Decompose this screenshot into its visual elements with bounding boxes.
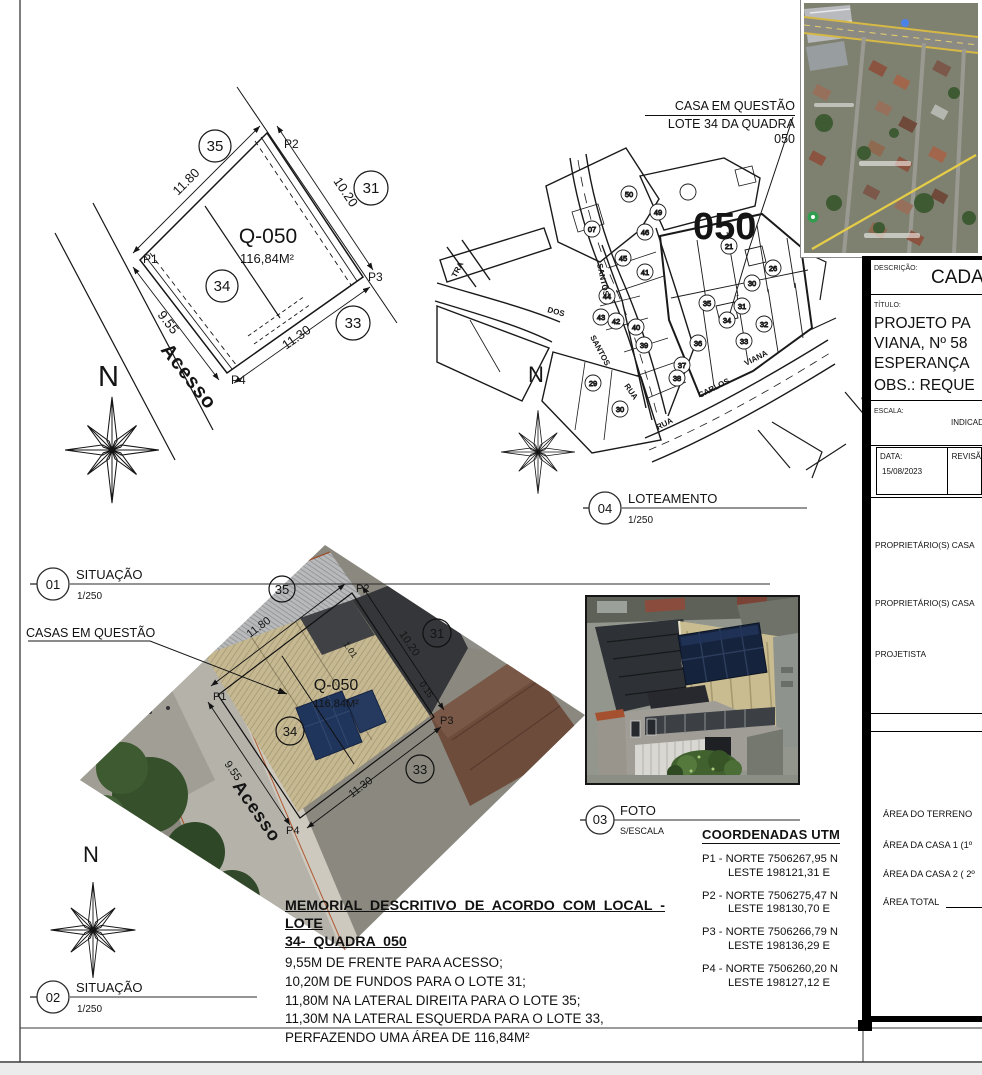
balloon-02-num: 02 (46, 990, 60, 1005)
paper-edge (0, 1063, 982, 1075)
balloon-04-num: 04 (598, 501, 612, 516)
balloon-03-title: FOTO (620, 803, 656, 818)
proprietario1-label: PROPRIETÁRIO(S) CASA (875, 540, 975, 550)
memorial-descritivo: MEMORIAL DESCRITIVO DE ACORDO COM LOCAL … (285, 897, 695, 1048)
casa-callout-line1: CASA EM QUESTÃO (645, 99, 795, 116)
coord-p1-leste: LESTE 198121,31 E (702, 867, 858, 881)
escala-value: INDICADA (951, 418, 982, 427)
balloon-02: 02 SITUAÇÃO 1/250 (30, 980, 257, 1015)
descricao-value: CADA (931, 267, 982, 289)
aer-p2: P2 (356, 583, 369, 595)
casas-em-questao-callout: CASAS EM QUESTÃO (26, 626, 155, 640)
titulo-line4: OBS.: REQUE (874, 377, 975, 395)
dim-9-55: 9.55 (155, 308, 182, 337)
memorial-line: 9,55M DE FRENTE PARA ACESSO; (285, 954, 695, 973)
street-dos: DOS (546, 305, 566, 318)
balloon-01-num: 01 (46, 577, 60, 592)
titulo-line2: VIANA, Nº 58 (874, 335, 968, 353)
aer-p1: P1 (213, 691, 226, 703)
point-p1: P1 (143, 252, 158, 266)
proprietario2-label: PROPRIETÁRIO(S) CASA (875, 598, 975, 608)
memorial-line: 10,20M DE FUNDOS PARA O LOTE 31; (285, 973, 695, 992)
coord-p3-norte: NORTE 7506266,79 N (726, 926, 838, 938)
coord-p2-norte: NORTE 7506275,47 N (726, 890, 838, 902)
street-carlos: CARLOS (697, 376, 732, 400)
map-lot: 41 (641, 268, 649, 277)
map-lot: 42 (612, 317, 620, 326)
satellite-photo (800, 0, 982, 258)
map-lot: 46 (641, 228, 649, 237)
house-photo-image (587, 597, 798, 783)
point-p2: P2 (284, 137, 299, 151)
titleblock-areas: ÁREA DO TERRENO ÁREA DA CASA 1 (1º ÁREA … (871, 732, 982, 1018)
map-lot: 29 (589, 379, 597, 388)
memorial-line: 11,30M NA LATERAL ESQUERDA PARA O LOTE 3… (285, 1010, 695, 1029)
dim-11-30: 11.30 (279, 322, 313, 352)
street-rua-a: RUA (622, 382, 639, 402)
map-lot: 40 (632, 323, 640, 332)
aer-p4: P4 (286, 825, 299, 837)
map-lot: 33 (740, 337, 748, 346)
area-casa1-label: ÁREA DA CASA 1 (1º (883, 840, 972, 850)
titleblock-escala: ESCALA: INDICADA (871, 401, 982, 446)
data-label: DATA: (880, 452, 947, 461)
coord-p1-id: P1 - (702, 853, 723, 865)
map-lot: 07 (588, 225, 596, 234)
coord-p3: P3 - NORTE 7506266,79 N LESTE 198136,29 … (702, 926, 858, 954)
lot-area: 116,84M² (240, 251, 295, 266)
area-casa2-label: ÁREA DA CASA 2 ( 2º (883, 869, 975, 879)
dim-11-80: 11.80 (170, 165, 203, 198)
coord-p2-id: P2 - (702, 890, 723, 902)
balloon-02-scale: 1/250 (77, 1004, 102, 1015)
area-total-label: ÁREA TOTAL (883, 897, 939, 907)
casa-callout-line2: LOTE 34 DA QUADRA 050 (645, 117, 795, 147)
data-value: 15/08/2023 (880, 467, 947, 476)
lot34-label: 34 (214, 278, 231, 295)
aer-p3: P3 (440, 715, 453, 727)
descricao-label: DESCRIÇÃO: (874, 265, 918, 272)
house-photo (585, 595, 800, 785)
map-lot: 37 (678, 361, 686, 370)
quadra-050-label: 050 (693, 206, 756, 248)
projetista-label: PROJETISTA (875, 649, 926, 659)
street-acesso: Acesso (156, 340, 221, 414)
map-lot: 35 (703, 299, 711, 308)
memorial-title-line2: 34- QUADRA 050 (285, 933, 695, 951)
coord-p4-id: P4 - (702, 963, 723, 975)
coord-p3-id: P3 - (702, 926, 723, 938)
data-cell: DATA: 15/08/2023 (877, 448, 948, 494)
balloon-04: 04 LOTEAMENTO 1/250 (583, 491, 807, 526)
titulo-line1: PROJETO PA (874, 315, 971, 333)
coordenadas-utm: COORDENADAS UTM P1 - NORTE 7506267,95 N … (702, 826, 858, 990)
lot33-label: 33 (345, 315, 362, 332)
titleblock-gap-row (871, 714, 982, 732)
area-terreno-label: ÁREA DO TERRENO (883, 809, 972, 819)
memorial-line: 11,80M NA LATERAL DIREITA PARA O LOTE 35… (285, 992, 695, 1011)
balloon-04-scale: 1/250 (628, 515, 653, 526)
map-lot: 45 (619, 254, 627, 263)
map-lot: 43 (597, 313, 605, 322)
balloon-02-title: SITUAÇÃO (76, 980, 142, 995)
memorial-line: PERFAZENDO UMA ÁREA DE 116,84M² (285, 1029, 695, 1048)
titleblock-descricao: DESCRIÇÃO: CADA (871, 260, 982, 295)
titleblock-titulo: TÍTULO: PROJETO PA VIANA, Nº 58 ESPERANÇ… (871, 295, 982, 401)
balloon-01-title: SITUAÇÃO (76, 567, 142, 582)
satellite-photo-image (804, 3, 978, 253)
balloon-03-scale: S/ESCALA (620, 826, 664, 836)
coord-p1-norte: NORTE 7506267,95 N (726, 853, 838, 865)
titleblock-data-row: DATA: 15/08/2023 REVISÃ (871, 446, 982, 498)
map-lot: 30 (616, 405, 624, 414)
north-label-3: N (83, 842, 99, 867)
title-block: DESCRIÇÃO: CADA TÍTULO: PROJETO PA VIANA… (862, 256, 982, 1022)
lot-diagram-labels: 35 31 34 33 Q-050 116,84M² P1 P2 P3 P4 1… (143, 137, 383, 414)
map-poi-blue (901, 19, 909, 27)
map-lot: 32 (760, 320, 768, 329)
coord-p4: P4 - NORTE 7506260,20 N LESTE 198127,12 … (702, 963, 858, 991)
aer-lot-code: Q-050 (314, 677, 359, 694)
balloon-01-scale: 1/250 (77, 591, 102, 602)
coord-p4-norte: NORTE 7506260,20 N (726, 963, 838, 975)
compass-rose-1: N (65, 361, 159, 503)
area-total-line (946, 906, 982, 908)
drawing-sheet: 35 31 34 33 Q-050 116,84M² P1 P2 P3 P4 1… (0, 0, 982, 1075)
coord-p1: P1 - NORTE 7506267,95 N LESTE 198121,31 … (702, 853, 858, 881)
street-viana: VIANA (743, 348, 769, 367)
escala-label: ESCALA: (874, 408, 904, 415)
aer-lot31: 31 (430, 626, 444, 641)
coord-p3-leste: LESTE 198136,29 E (702, 940, 858, 954)
map-lot: 30 (748, 279, 756, 288)
map-lot: 49 (654, 208, 662, 217)
lot31-label: 31 (363, 180, 380, 197)
lot-diagram (55, 87, 397, 460)
titulo-line3: ESPERANÇA (874, 355, 970, 373)
map-lot: 36 (694, 339, 702, 348)
revisao-cell: REVISÃ (948, 448, 981, 494)
point-p3: P3 (368, 270, 383, 284)
compass-rose-2: N (501, 362, 575, 494)
titulo-label: TÍTULO: (874, 302, 901, 309)
map-lot: 50 (625, 190, 633, 199)
revisao-label: REVISÃ (952, 452, 981, 461)
point-p4: P4 (231, 373, 246, 387)
map-lot: 38 (673, 374, 681, 383)
aer-lot33: 33 (413, 762, 427, 777)
coord-p2: P2 - NORTE 7506275,47 N LESTE 198130,70 … (702, 890, 858, 918)
memorial-title-line1: MEMORIAL DESCRITIVO DE ACORDO COM LOCAL … (285, 897, 695, 933)
coordenadas-header: COORDENADAS UTM (702, 827, 840, 844)
lot-code: Q-050 (239, 225, 297, 248)
north-label-1: N (98, 361, 119, 393)
balloon-04-title: LOTEAMENTO (628, 491, 717, 506)
casa-em-questao-callout: CASA EM QUESTÃO LOTE 34 DA QUADRA 050 (645, 99, 795, 147)
titleblock-proprietarios: PROPRIETÁRIO(S) CASA PROPRIETÁRIO(S) CAS… (871, 498, 982, 714)
map-lot: 39 (640, 341, 648, 350)
aer-lot34: 34 (283, 724, 297, 739)
lot35-label: 35 (207, 138, 224, 155)
balloon-03-num: 03 (593, 812, 607, 827)
coord-p4-leste: LESTE 198127,12 E (702, 977, 858, 991)
map-lot-34: 34 (723, 316, 731, 325)
coord-p2-leste: LESTE 198130,70 E (702, 903, 858, 917)
map-lot: 26 (769, 264, 777, 273)
aer-lot-area: 116,84M² (313, 698, 359, 710)
map-lot: 31 (738, 302, 746, 311)
compass-rose-3: N (51, 842, 136, 978)
